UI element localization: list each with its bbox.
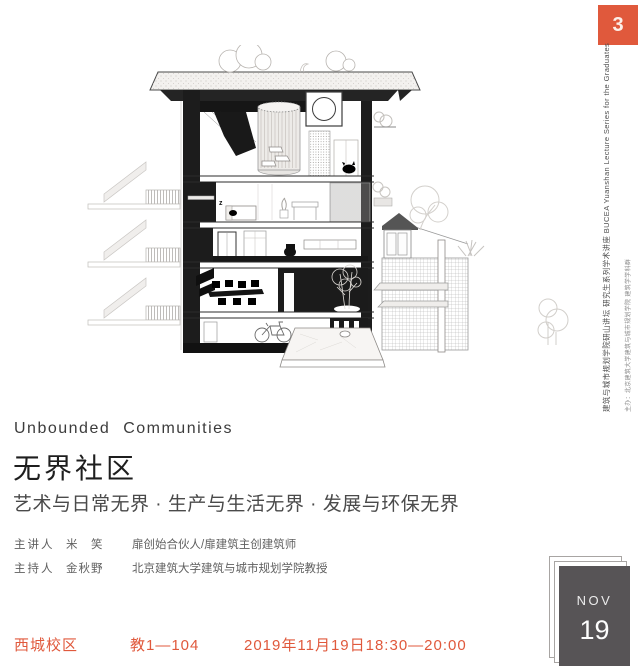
side-caption-organizer: 主办：北京建筑大学建筑与城市规划学院 建筑学学科群: [623, 259, 632, 412]
subtitle: 艺术与日常无界 · 生产与生活无界 · 发展与环保无界: [13, 489, 459, 516]
datetime-label: 2019年11月19日18:30—20:00: [244, 634, 467, 655]
balcony-plants: [374, 112, 396, 127]
host-desc: 北京建筑大学建筑与城市规划学院教授: [132, 560, 328, 576]
hill-trees: [410, 186, 448, 230]
speaker-role: 主讲人: [14, 536, 66, 552]
date-card-day: 19: [559, 615, 630, 646]
host-role: 主持人: [14, 560, 66, 576]
roof-plants: [219, 45, 355, 72]
title-english: Unbounded Communities: [14, 420, 233, 438]
terrace: [280, 328, 385, 367]
room-label: 教1—104: [130, 634, 199, 655]
fourth-floor: [183, 265, 374, 318]
series-number-badge: 3: [598, 5, 638, 45]
third-floor: [183, 228, 374, 268]
left-external-stairs: [88, 100, 181, 350]
speaker-name: 米 笑: [66, 536, 132, 552]
spiral-stair-cylinder: [258, 102, 300, 175]
building-section-illustration: z: [55, 45, 575, 425]
date-card-month: NOV: [559, 593, 630, 608]
title-chinese: 无界社区: [13, 447, 137, 487]
campus-label: 西城校区: [14, 634, 78, 655]
balcony-plants-2: [373, 182, 390, 197]
speaker-row: 主讲人 米 笑 扉创始合伙人/扉建筑主创建筑师: [14, 536, 296, 552]
speaker-desc: 扉创始合伙人/扉建筑主创建筑师: [132, 536, 296, 552]
host-name: 金秋野: [66, 560, 132, 576]
bicycle: [255, 322, 291, 342]
lecture-poster: 3 建筑与城市规划学院研山讲坛 研究生系列学术讲座 BUCEA Yuanshan…: [0, 0, 640, 672]
right-bush: [538, 299, 568, 345]
hillside-and-house: [382, 186, 484, 350]
second-floor: z: [183, 182, 392, 228]
side-caption-main: 建筑与城市规划学院研山讲坛 研究生系列学术讲座 BUCEA Yuanshan L…: [601, 43, 612, 412]
svg-text:z: z: [219, 200, 223, 207]
date-card: NOV 19: [559, 566, 630, 666]
series-number: 3: [612, 14, 623, 37]
host-row: 主持人 金秋野 北京建筑大学建筑与城市规划学院教授: [14, 560, 328, 576]
